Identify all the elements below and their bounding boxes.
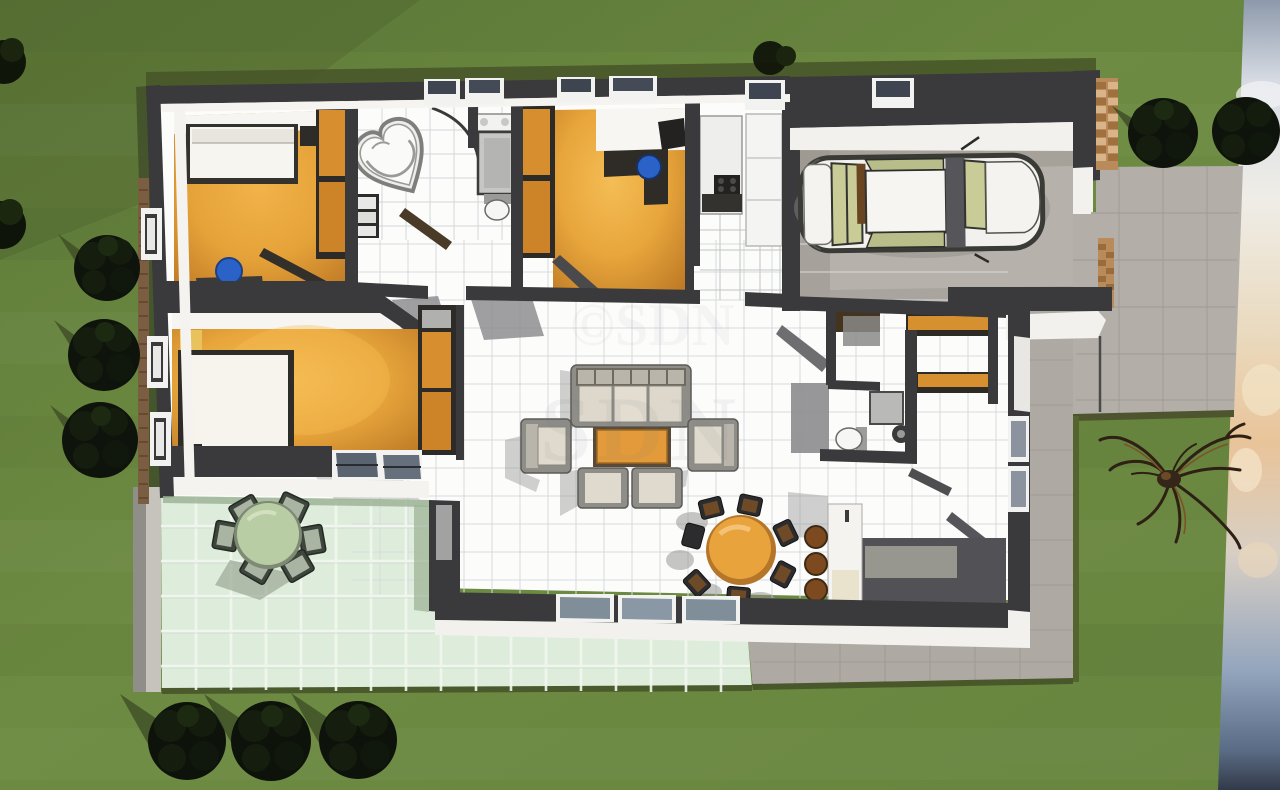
svg-text:©SDN: ©SDN bbox=[570, 292, 735, 358]
svg-text:SDN: SDN bbox=[540, 378, 742, 480]
